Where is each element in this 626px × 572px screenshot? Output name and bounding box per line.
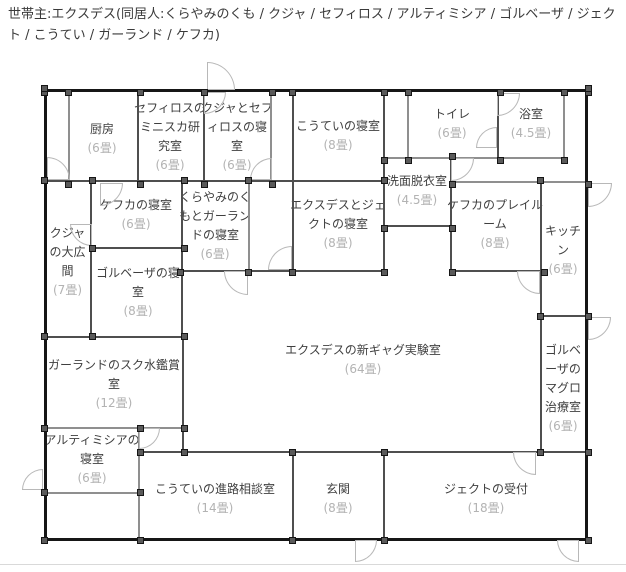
- wall-handle[interactable]: [65, 181, 72, 188]
- wall-handle[interactable]: [537, 449, 544, 456]
- wall-handle[interactable]: [449, 225, 456, 232]
- room-size: (64畳): [285, 360, 441, 379]
- wall-segment: [45, 336, 184, 338]
- wall-handle[interactable]: [137, 89, 144, 96]
- wall-handle[interactable]: [405, 157, 412, 164]
- wall-segment: [44, 538, 589, 541]
- wall-handle[interactable]: [41, 333, 48, 340]
- wall-handle[interactable]: [449, 153, 456, 160]
- wall-handle[interactable]: [289, 269, 296, 276]
- door-arc: [22, 469, 43, 490]
- wall-segment: [90, 181, 92, 337]
- wall-segment: [407, 90, 409, 158]
- room-size: (18畳): [443, 499, 529, 518]
- wall-handle[interactable]: [289, 537, 296, 544]
- wall-handle[interactable]: [289, 449, 296, 456]
- wall-handle[interactable]: [497, 89, 504, 96]
- room-label: こうていの寝室(8畳): [295, 117, 381, 155]
- room-size: (6畳): [178, 245, 252, 264]
- wall-handle[interactable]: [89, 333, 96, 340]
- wall-segment: [68, 90, 70, 182]
- wall-segment: [45, 180, 385, 182]
- room-size: (6畳): [541, 417, 585, 436]
- room-size: (6畳): [99, 215, 173, 234]
- door-arc: [513, 452, 536, 475]
- room-label: ガーランドのスク水鑑賞 室(12畳): [45, 356, 183, 413]
- wall-handle[interactable]: [177, 269, 184, 276]
- room-name: こうていの進路相談室: [154, 480, 276, 499]
- wall-segment: [383, 225, 452, 227]
- wall-handle[interactable]: [137, 425, 144, 432]
- wall-handle[interactable]: [585, 85, 592, 92]
- room-name: ゴルベ ーザの マグロ 治療室: [541, 341, 585, 417]
- room-label: トイレ(6畳): [425, 105, 479, 143]
- room-name: 洗面脱衣室: [378, 172, 456, 191]
- room-name: 厨房: [69, 120, 135, 139]
- wall-segment: [181, 270, 385, 272]
- wall-handle[interactable]: [245, 177, 252, 184]
- wall-segment: [90, 247, 183, 249]
- room-name: ジェクトの受付: [443, 480, 529, 499]
- wall-handle[interactable]: [381, 157, 388, 164]
- wall-handle[interactable]: [41, 177, 48, 184]
- wall-handle[interactable]: [269, 181, 276, 188]
- wall-segment: [450, 181, 587, 183]
- room-size: (6畳): [134, 156, 206, 175]
- wall-handle[interactable]: [65, 89, 72, 96]
- wall-handle[interactable]: [89, 177, 96, 184]
- wall-handle[interactable]: [497, 157, 504, 164]
- door-arc: [517, 271, 540, 294]
- wall-handle[interactable]: [181, 245, 188, 252]
- wall-handle[interactable]: [381, 89, 388, 96]
- room-size: (6畳): [69, 139, 135, 158]
- room-size: (4.5畳): [378, 191, 456, 210]
- room-size: (6畳): [425, 124, 479, 143]
- wall-handle[interactable]: [181, 333, 188, 340]
- wall-handle[interactable]: [181, 177, 188, 184]
- wall-handle[interactable]: [201, 89, 208, 96]
- room-label: ジェクトの受付(18畳): [443, 480, 529, 518]
- room-label: ゴルベーザの寝 室(8畳): [95, 264, 181, 321]
- wall-segment: [181, 181, 183, 337]
- room-label: ゴルベ ーザの マグロ 治療室(6畳): [541, 341, 585, 436]
- wall-handle[interactable]: [449, 181, 456, 188]
- wall-handle[interactable]: [89, 245, 96, 252]
- wall-handle[interactable]: [561, 89, 568, 96]
- room-name: くらやみのく もとガーラン ドの寝室: [178, 188, 252, 245]
- room-name: ゴルベーザの寝 室: [95, 264, 181, 302]
- wall-segment: [137, 90, 139, 182]
- wall-handle[interactable]: [585, 181, 592, 188]
- door-arc: [355, 540, 377, 562]
- wall-handle[interactable]: [181, 425, 188, 432]
- wall-handle[interactable]: [561, 157, 568, 164]
- wall-handle[interactable]: [585, 449, 592, 456]
- room-size: (8畳): [289, 234, 387, 253]
- room-label: 玄関(8畳): [314, 480, 362, 518]
- room-label: くらやみのく もとガーラン ドの寝室(6畳): [178, 188, 252, 264]
- wall-handle[interactable]: [41, 425, 48, 432]
- wall-segment: [540, 315, 587, 317]
- door-arc: [588, 317, 611, 340]
- wall-handle[interactable]: [201, 181, 208, 188]
- room-size: (12畳): [45, 394, 183, 413]
- room-label: エクスデスの新ギャグ実験室(64畳): [285, 341, 441, 379]
- room-name: ガーランドのスク水鑑賞 室: [45, 356, 183, 394]
- door-arc: [588, 183, 612, 207]
- wall-handle[interactable]: [381, 225, 388, 232]
- room-size: (6畳): [43, 469, 141, 488]
- wall-handle[interactable]: [289, 89, 296, 96]
- room-name: キッチ ン: [539, 222, 587, 260]
- wall-handle[interactable]: [381, 449, 388, 456]
- room-label: 厨房(6畳): [69, 120, 135, 158]
- wall-segment: [563, 90, 565, 158]
- room-size: (8畳): [446, 234, 544, 253]
- room-label: エクスデスとジェ クトの寝室(8畳): [289, 196, 387, 253]
- room-label: アルティミシアの 寝室(6畳): [43, 431, 141, 488]
- wall-handle[interactable]: [181, 449, 188, 456]
- wall-handle[interactable]: [537, 313, 544, 320]
- room-size: (7畳): [45, 281, 90, 300]
- door-arc: [476, 127, 497, 148]
- room-name: エクスデスの新ギャグ実験室: [285, 341, 441, 360]
- wall-segment: [44, 89, 589, 92]
- room-size: (14畳): [154, 499, 276, 518]
- wall-handle[interactable]: [137, 449, 144, 456]
- door-arc: [47, 157, 70, 180]
- wall-handle[interactable]: [137, 489, 144, 496]
- wall-handle[interactable]: [537, 177, 544, 184]
- wall-segment: [248, 181, 250, 272]
- wall-handle[interactable]: [381, 537, 388, 544]
- wall-handle[interactable]: [381, 177, 388, 184]
- room-name: セフィロスの ミニスカ研 究室: [134, 99, 206, 156]
- wall-handle[interactable]: [449, 269, 456, 276]
- wall-handle[interactable]: [137, 181, 144, 188]
- door-arc: [557, 540, 579, 562]
- wall-segment: [182, 337, 184, 452]
- wall-handle[interactable]: [405, 89, 412, 96]
- wall-segment: [45, 492, 140, 494]
- wall-handle[interactable]: [245, 269, 252, 276]
- room-size: (4.5畳): [503, 124, 559, 143]
- room-name: エクスデスとジェ クトの寝室: [289, 196, 387, 234]
- room-label: セフィロスの ミニスカ研 究室(6畳): [134, 99, 206, 175]
- door-arc: [451, 158, 474, 181]
- room-name: アルティミシアの 寝室: [43, 431, 141, 469]
- wall-segment: [383, 451, 385, 541]
- wall-handle[interactable]: [269, 89, 276, 96]
- room-size: (8畳): [314, 499, 362, 518]
- room-name: トイレ: [425, 105, 479, 124]
- wall-handle[interactable]: [137, 537, 144, 544]
- wall-handle[interactable]: [41, 489, 48, 496]
- door-arc: [268, 246, 292, 270]
- wall-handle[interactable]: [41, 537, 48, 544]
- wall-handle[interactable]: [41, 85, 48, 92]
- room-size: (8畳): [95, 302, 181, 321]
- room-name: 玄関: [314, 480, 362, 499]
- room-name: こうていの寝室: [295, 117, 381, 136]
- room-size: (8畳): [295, 136, 381, 155]
- wall-handle[interactable]: [585, 537, 592, 544]
- wall-handle[interactable]: [585, 313, 592, 320]
- floorplan-canvas: 厨房(6畳) セフィロスの ミニスカ研 究室(6畳) クジャとセフ ィロスの寝 …: [0, 0, 626, 572]
- wall-segment: [292, 451, 294, 541]
- room-name: ケフカのプレイル ーム: [446, 196, 544, 234]
- wall-segment: [45, 427, 184, 429]
- wall-handle[interactable]: [381, 269, 388, 276]
- room-label: こうていの進路相談室(14畳): [154, 480, 276, 518]
- room-label: ケフカのプレイル ーム(8畳): [446, 196, 544, 253]
- divider: [0, 564, 626, 565]
- room-label: 洗面脱衣室(4.5畳): [378, 172, 456, 210]
- door-arc: [207, 62, 235, 90]
- wall-handle[interactable]: [541, 269, 548, 276]
